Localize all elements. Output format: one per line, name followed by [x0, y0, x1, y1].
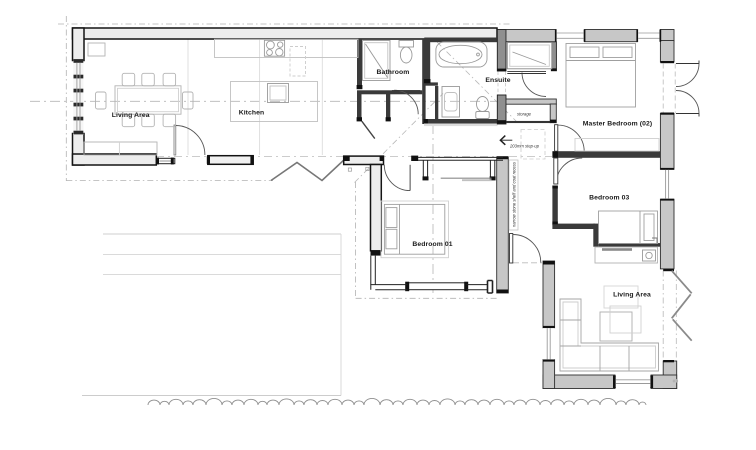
- svg-text:Living Area: Living Area: [112, 112, 150, 119]
- svg-text:Ensuite: Ensuite: [485, 77, 510, 84]
- svg-text:Bedroom 01: Bedroom 01: [412, 241, 452, 248]
- svg-text:Bathroom: Bathroom: [377, 69, 410, 76]
- svg-text:Kitchen: Kitchen: [239, 110, 265, 117]
- svg-text:storage: storage: [517, 112, 532, 117]
- svg-text:narrow stone shelf and coat re: narrow stone shelf and coat recess: [511, 161, 516, 227]
- svg-text:Living Area: Living Area: [613, 292, 651, 299]
- svg-text:Master Bedroom (02): Master Bedroom (02): [583, 121, 653, 128]
- svg-text:Bedroom 03: Bedroom 03: [589, 194, 629, 201]
- svg-text:203mm step-up: 203mm step-up: [509, 143, 540, 148]
- svg-text:o b: o b: [673, 379, 678, 383]
